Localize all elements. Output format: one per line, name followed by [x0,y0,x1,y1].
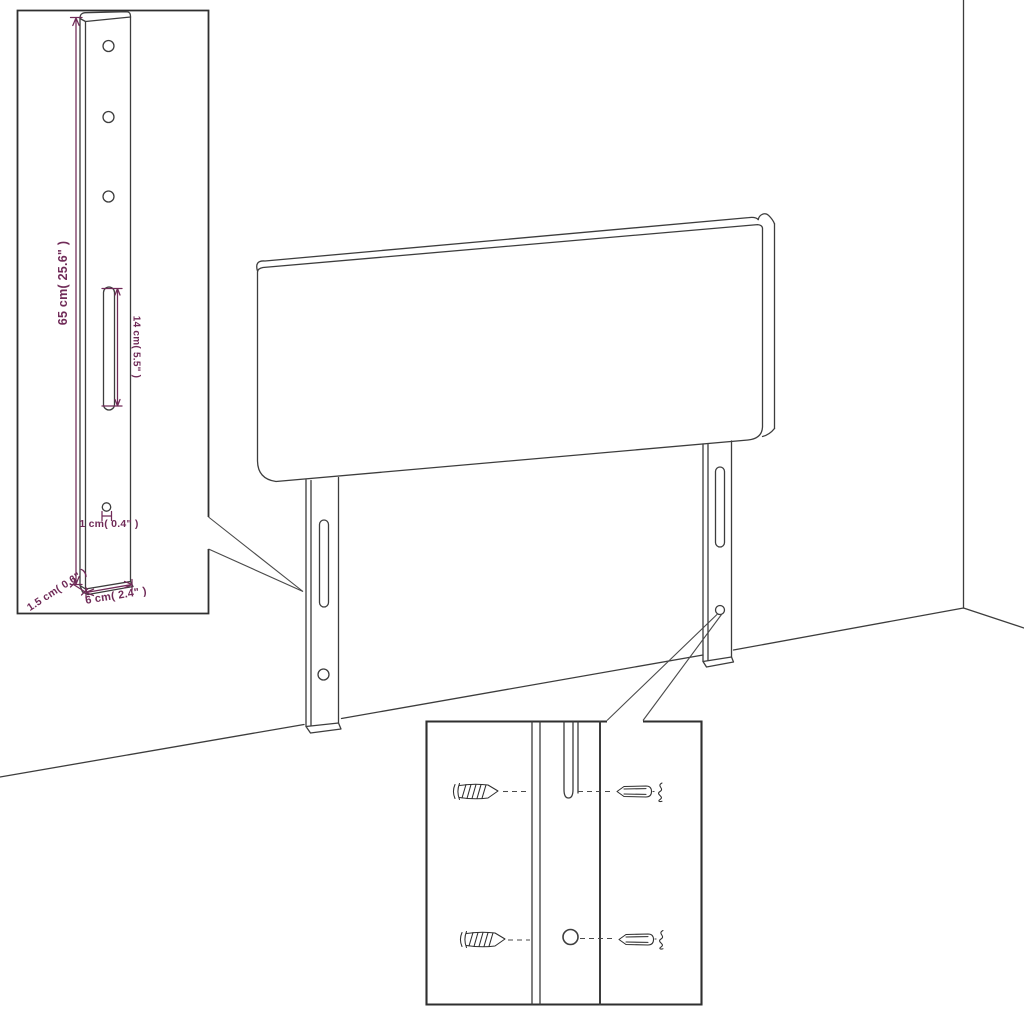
headboard-right-cap-bottom [763,429,775,437]
bracket-callout-leader-bottom [209,549,304,592]
floor-line-right [964,608,1024,628]
screw-detail [454,722,664,1005]
closeup-round-hole [563,930,578,945]
floor-line-left [0,725,304,778]
bracket-top-front-edge [80,17,131,22]
diagram-artwork [0,0,1024,1024]
anchor-squiggle-icon [660,931,663,950]
bracket-hole-lower [103,191,114,202]
screw-icon [454,784,499,800]
dim-slot-line [102,289,122,407]
dimension-label-height: 65 cm( 25.6" ) [56,241,70,325]
screw-callout-leader-left [607,614,718,721]
floor-line-mid [342,655,704,719]
floor-line-mid2 [734,608,964,650]
headboard-front-face [258,225,763,482]
anchor-squiggle-icon [659,783,662,802]
bracket-callout-leader-top [209,517,304,592]
right-leg-slot [716,467,725,547]
dimension-label-slot-length: 14 cm( 5.5" ) [131,316,142,378]
headboard-panel [257,214,775,482]
bracket-slot [104,287,115,410]
screw-icon [461,932,506,948]
screw-callout-leader-right [643,615,722,721]
dimension-label-hole: 1 cm( 0.4" ) [79,518,138,530]
left-leg-hole [318,669,329,680]
bracket-hole-top [103,41,114,52]
bracket-small-hole [102,503,110,511]
headboard-top-right-curl [758,214,774,224]
closeup-slot [564,722,573,799]
wall-plug-icon [617,786,652,797]
bracket-hole-middle [103,112,114,123]
bracket-detail [80,12,133,595]
left-mounting-leg [306,478,341,734]
right-leg-hole [716,606,725,615]
diagram-canvas: 65 cm( 25.6" ) 14 cm( 5.5" ) 1 cm( 0.4" … [0,0,1024,1024]
wall-plug-icon [619,934,654,945]
left-leg-slot [320,520,329,607]
